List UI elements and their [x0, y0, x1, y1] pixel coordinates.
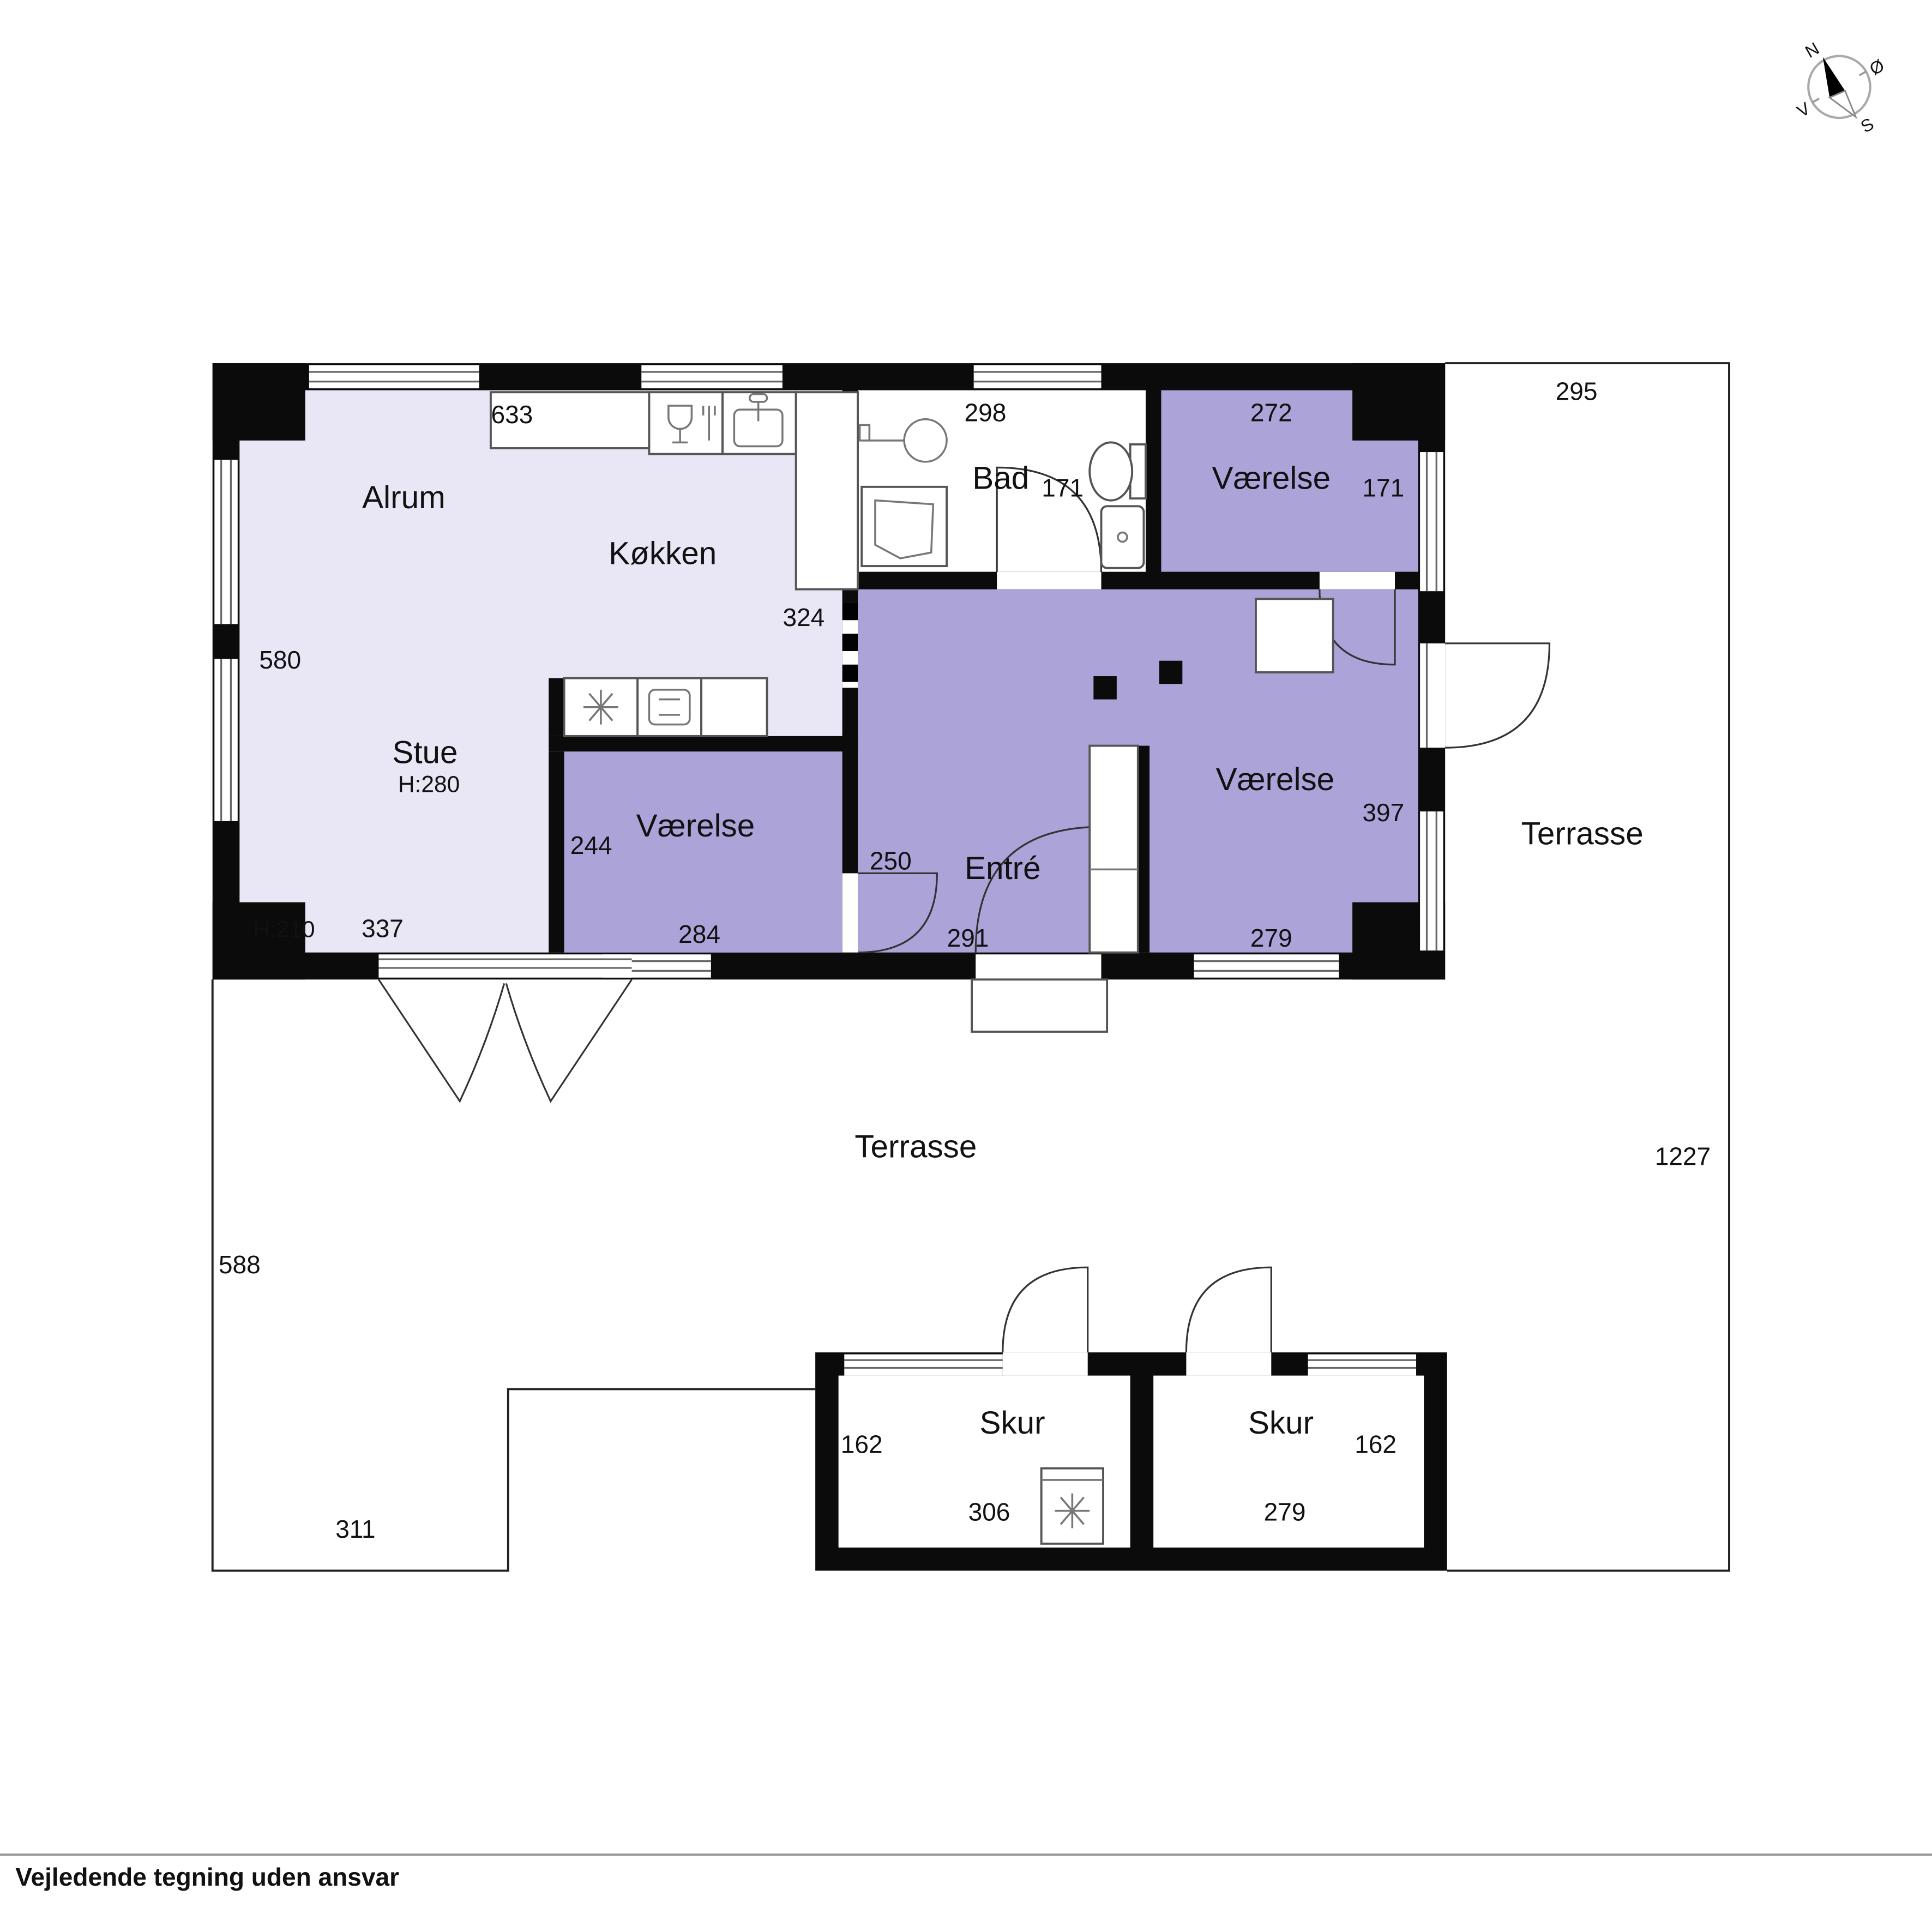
window [309, 365, 479, 389]
floor-plan-drawing: Alrum 633 580 Køkken 324 Stue H:280 H:21… [0, 0, 1932, 1932]
shower-icon [862, 487, 947, 566]
washer-icon [1102, 506, 1144, 568]
room-label-skur-left: Skur [979, 1405, 1045, 1441]
window [641, 365, 783, 389]
post [1093, 676, 1117, 700]
dishwasher-icon [649, 392, 723, 454]
dim-skur-right-depth: 162 [1355, 1430, 1397, 1458]
dim-vaerelse-right-width: 279 [1250, 924, 1292, 952]
wall-vaerelse-small-left [549, 751, 564, 952]
window [1308, 1355, 1416, 1376]
window [844, 1355, 1003, 1376]
dim-bad-depth: 171 [1042, 474, 1084, 502]
door-opening-vaerelse-small [842, 873, 858, 952]
kitchen-island [564, 678, 767, 736]
dim-skur-left-width: 306 [968, 1497, 1010, 1526]
dim-vaerelse-top-depth: 171 [1362, 474, 1404, 502]
window [214, 460, 238, 624]
corner-block [213, 363, 305, 441]
corner-block [1352, 363, 1445, 441]
window [1420, 811, 1443, 950]
room-label-kokken: Køkken [609, 536, 717, 571]
room-label-terrasse-bottom: Terrasse [854, 1129, 977, 1164]
dim-bad-width: 298 [965, 398, 1007, 426]
dim-terrasse-right-width: 295 [1556, 377, 1598, 405]
room-label-bad: Bad [972, 460, 1029, 496]
terrace-right-outline [1445, 363, 1729, 1570]
closet [1256, 599, 1333, 672]
french-door [378, 954, 631, 1101]
footer-disclaimer: Vejledende tegning uden ansvar [15, 1863, 399, 1891]
window [1194, 954, 1339, 978]
terrace-bottom-outline [213, 979, 815, 1570]
window [1420, 452, 1443, 591]
room-label-vaerelse-top: Værelse [1212, 460, 1331, 496]
fridge-cabinet [796, 392, 858, 589]
room-label-stue: Stue [392, 735, 458, 770]
dim-alrum-width: 633 [491, 400, 533, 429]
terrace-door [1420, 643, 1549, 748]
dim-vaerelse-right-depth: 397 [1362, 798, 1404, 827]
room-label-vaerelse-right: Værelse [1216, 762, 1335, 797]
compass-south-label: S [1857, 114, 1877, 137]
room-label-terrasse-right: Terrasse [1521, 816, 1644, 851]
window [974, 365, 1102, 389]
dim-terrasse-right-length: 1227 [1655, 1142, 1711, 1170]
compass-east-label: Ø [1866, 55, 1887, 79]
kitchen-sink-icon [723, 392, 796, 454]
shed-door [1003, 1267, 1088, 1375]
dim-terrasse-bottom-width: 311 [335, 1515, 375, 1543]
dim-stue-ceiling: H:280 [398, 772, 460, 798]
dim-vaerelse-top-width: 272 [1250, 398, 1292, 426]
shed-door [1186, 1267, 1271, 1375]
compass-north-label: N [1802, 38, 1822, 62]
window [214, 659, 238, 821]
compass-west-label: V [1793, 98, 1814, 121]
freezer-icon [1042, 1468, 1103, 1544]
wardrobe [1090, 746, 1138, 953]
room-label-entre: Entré [965, 851, 1041, 886]
room-label-vaerelse-small: Værelse [636, 808, 755, 844]
wall-wardrobe-side [1138, 746, 1149, 953]
dim-vaerelse-small-width: 284 [678, 920, 720, 948]
room-label-skur-right: Skur [1248, 1405, 1314, 1441]
dim-stue-ceiling-low: H:210 [253, 917, 315, 942]
dim-skur-right-width: 279 [1264, 1497, 1306, 1526]
dim-vaerelse-small-depth: 244 [570, 831, 612, 859]
dim-entre-side: 250 [870, 846, 912, 875]
dim-kokken-opening: 324 [783, 603, 824, 631]
floor-plan-page: Alrum 633 580 Køkken 324 Stue H:280 H:21… [0, 0, 1932, 1932]
dim-terrasse-bottom-left: 588 [219, 1250, 261, 1279]
room-label-alrum: Alrum [362, 480, 446, 515]
dim-skur-left-depth: 162 [841, 1430, 883, 1458]
dim-entre-width: 291 [947, 924, 989, 952]
door-opening-bad [997, 572, 1101, 589]
toilet-icon [1090, 442, 1146, 500]
compass-icon: N Ø S V [1793, 38, 1888, 136]
dim-stue-width: 337 [362, 914, 404, 942]
dim-alrum-height: 580 [259, 646, 301, 674]
wall-kokken-vaerelse-small [549, 736, 858, 751]
wall-island-stub [549, 678, 564, 736]
door-opening-vaerelse-top [1320, 572, 1395, 589]
wall-bad-vaerelse-top [1146, 390, 1161, 572]
post [1159, 661, 1183, 684]
